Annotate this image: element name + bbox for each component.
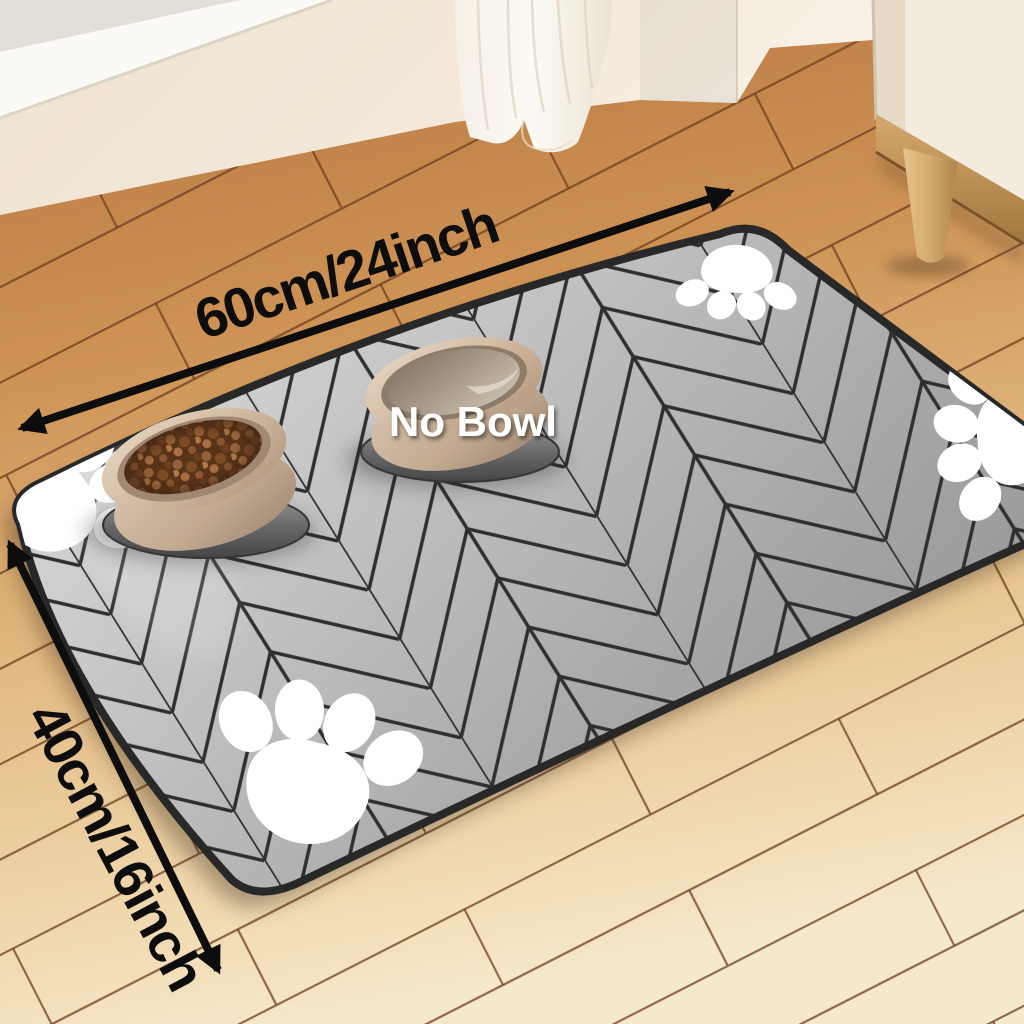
no-bowl-label: No Bowl bbox=[389, 398, 557, 445]
product-photo: 60cm/24inch 40cm/16inch No Bowl bbox=[0, 0, 1024, 1024]
wall-corner-shade bbox=[640, 0, 737, 103]
scene: 60cm/24inch 40cm/16inch No Bowl bbox=[0, 0, 1024, 1024]
